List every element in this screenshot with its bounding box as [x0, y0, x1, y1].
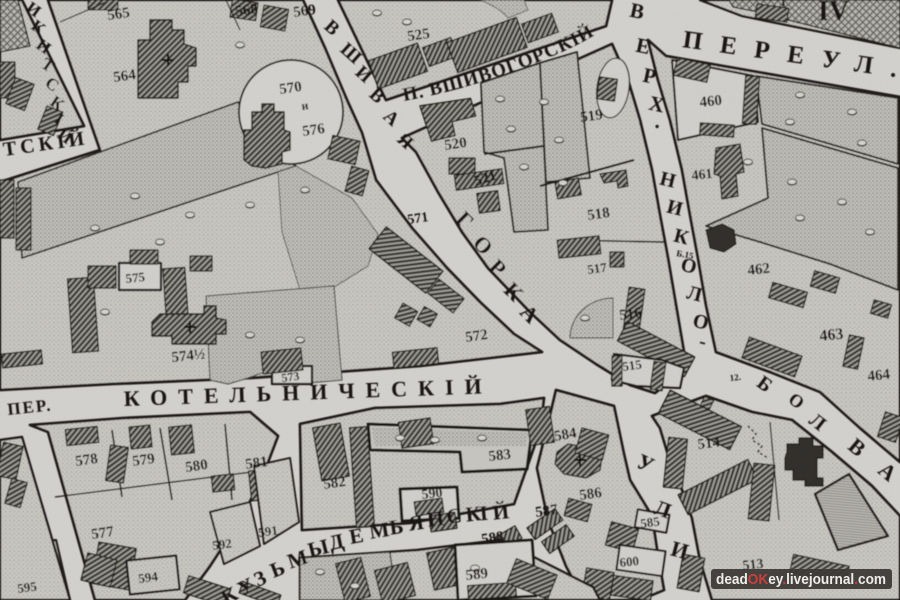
svg-text:deadOKey.livejournal.com: deadOKey.livejournal.com [716, 571, 886, 588]
